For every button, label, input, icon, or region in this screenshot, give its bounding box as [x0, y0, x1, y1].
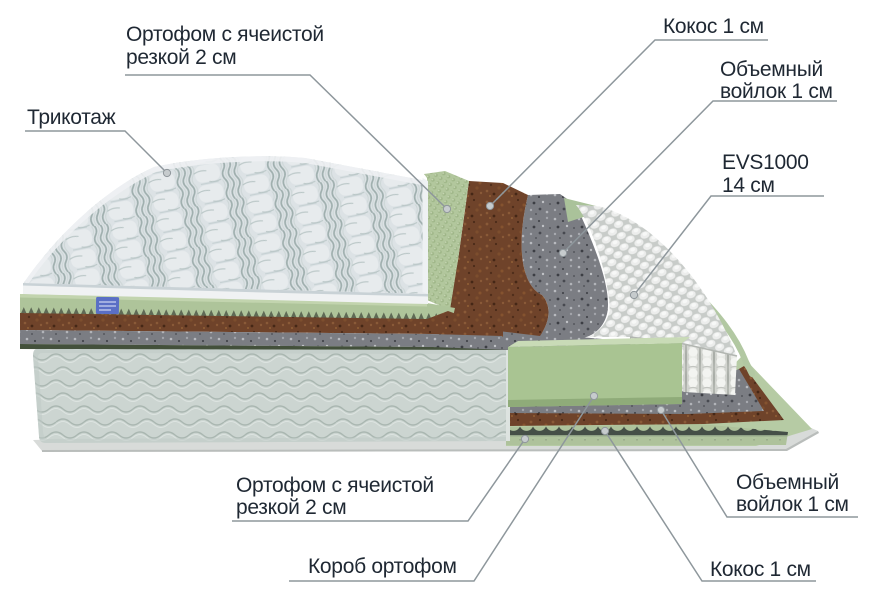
svg-text:войлок 1 см: войлок 1 см: [720, 80, 833, 103]
svg-text:Кокос 1 см: Кокос 1 см: [710, 558, 811, 581]
svg-text:Кокос 1 см: Кокос 1 см: [663, 15, 764, 38]
svg-text:Трикотаж: Трикотаж: [27, 106, 116, 129]
svg-text:14 см: 14 см: [722, 174, 775, 197]
svg-text:Объемный: Объемный: [720, 58, 823, 81]
svg-text:резкой 2 см: резкой 2 см: [126, 46, 236, 69]
svg-text:Короб ортофом: Короб ортофом: [308, 555, 457, 578]
svg-text:Ортофом с ячеистой: Ортофом с ячеистой: [236, 474, 434, 497]
svg-text:войлок 1 см: войлок 1 см: [736, 493, 849, 516]
svg-text:Ортофом с ячеистой: Ортофом с ячеистой: [126, 23, 324, 46]
svg-text:EVS1000: EVS1000: [722, 151, 809, 174]
svg-text:Объемный: Объемный: [736, 471, 839, 494]
svg-text:резкой 2 см: резкой 2 см: [236, 496, 346, 519]
